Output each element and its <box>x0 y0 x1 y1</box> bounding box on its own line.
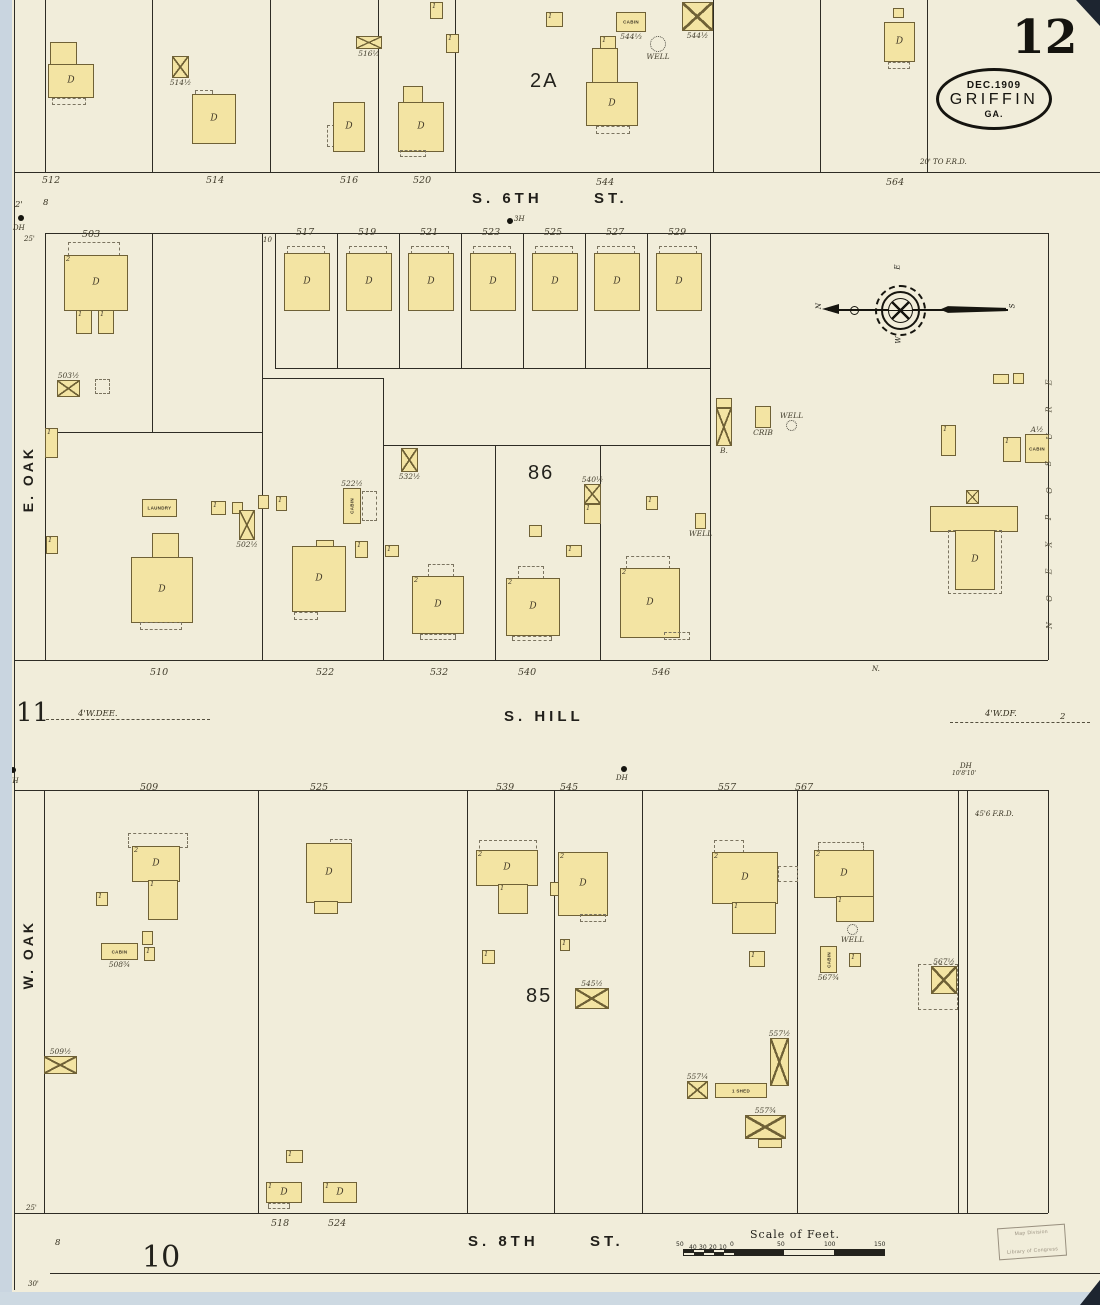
building <box>592 48 618 84</box>
building: D <box>192 94 236 144</box>
scale-title: Scale of Feet. <box>750 1228 840 1241</box>
compass-south-label: S <box>1008 304 1016 309</box>
building-storeys: 1 <box>47 428 51 436</box>
street-name: S. 6TH <box>472 190 543 207</box>
building-label: D <box>503 863 510 873</box>
porch-outline <box>778 866 798 882</box>
building-storeys: 1 <box>484 950 488 958</box>
lot-line <box>152 233 153 432</box>
building-storeys: 1 <box>213 501 217 509</box>
address-label: 512 <box>42 175 60 186</box>
building: 1 <box>849 953 861 967</box>
building-label: D <box>336 1187 343 1197</box>
building: D <box>470 253 516 311</box>
address-label: 564 <box>886 177 904 188</box>
outbuilding-x: 567½ <box>931 966 957 994</box>
scale-segment <box>684 1250 694 1253</box>
address-label: 503 <box>82 229 100 240</box>
building-label: D <box>551 277 558 287</box>
scale-segment <box>694 1252 704 1255</box>
building-storeys: 1 <box>48 536 52 544</box>
building: 1 <box>355 541 368 558</box>
building: D <box>884 22 915 62</box>
building-storeys: 2 <box>816 850 820 858</box>
address-label: 527 <box>606 227 624 238</box>
building: 1 <box>646 496 658 510</box>
stamp-line1: Map Division <box>1000 1228 1062 1238</box>
scale-bar <box>683 1249 885 1256</box>
building-label: D <box>158 585 165 595</box>
building: 1 <box>584 504 601 524</box>
building: D <box>408 253 454 311</box>
building-label: CABIN <box>350 498 355 514</box>
lot-line <box>337 233 338 368</box>
building-label: D <box>345 122 352 132</box>
building-label: D <box>67 76 74 86</box>
building-label: D <box>210 114 217 124</box>
address-label: 518 <box>271 1218 289 1229</box>
lot-line <box>383 445 710 446</box>
address-label: 520 <box>413 175 431 186</box>
lot-line <box>461 233 462 368</box>
building-label: D <box>365 277 372 287</box>
building: D2 <box>412 576 464 634</box>
building: D1 <box>266 1182 302 1203</box>
address-label: 525 <box>310 782 328 793</box>
sheet-number: 12 <box>1012 10 1077 65</box>
building-number: 567½ <box>933 957 955 966</box>
street-name: ST. <box>590 1233 624 1250</box>
building-number: 508¾ <box>109 960 131 969</box>
building-storeys: 2 <box>66 255 70 263</box>
exposure-edge-letter: P <box>1044 515 1053 520</box>
building <box>258 495 269 509</box>
building <box>930 506 1018 532</box>
address-label: 532 <box>430 667 448 678</box>
map-note: 10'8'10' <box>952 770 976 777</box>
lot-line <box>642 790 643 1213</box>
map-note: 20' TO F.R.D. <box>920 158 967 166</box>
address-label: 529 <box>668 227 686 238</box>
porch-outline <box>664 632 690 640</box>
exposure-edge-letter: R <box>1045 406 1054 412</box>
cabin-building: CABIN508¾ <box>101 943 138 960</box>
address-label: 509 <box>140 782 158 793</box>
building-number: B. <box>720 446 728 455</box>
lot-line <box>797 790 798 1213</box>
building-number: 502½ <box>236 540 258 549</box>
building <box>152 533 179 559</box>
map-note: 4'W.DF. <box>985 709 1017 719</box>
porch-outline <box>596 126 630 134</box>
lot-line <box>399 233 400 368</box>
building-number: 509½ <box>50 1047 72 1056</box>
title-badge: DEC.1909 GRIFFIN GA. <box>936 68 1052 130</box>
lot-line <box>820 0 821 172</box>
lot-line <box>275 233 276 368</box>
porch-outline <box>512 636 552 641</box>
map-note: 25' <box>26 1204 37 1212</box>
building: WELL <box>695 513 706 529</box>
badge-state: GA. <box>984 109 1003 119</box>
lot-line <box>14 790 1048 791</box>
building: 1 <box>749 951 765 967</box>
building-storeys: 1 <box>150 880 154 888</box>
lot-line <box>50 1273 1100 1274</box>
building <box>142 931 153 945</box>
address-label: 523 <box>482 227 500 238</box>
lot-line <box>927 0 928 172</box>
building-number: WELL <box>646 52 669 61</box>
building: 1 <box>98 310 114 334</box>
building-label: D <box>971 555 978 565</box>
building-storeys: 1 <box>448 34 452 42</box>
address-label: 514 <box>206 175 224 186</box>
building-number: 516½ <box>358 49 380 58</box>
building-label: D <box>152 859 159 869</box>
lot-line <box>262 233 263 660</box>
building-storeys: 1 <box>100 310 104 318</box>
map-note: 2' <box>15 200 23 210</box>
building-label: D <box>92 278 99 288</box>
building <box>893 8 904 18</box>
building: 1 <box>560 939 570 951</box>
map-note: 8 <box>43 198 48 208</box>
building-storeys: 1 <box>548 12 552 20</box>
block-number: 2A <box>530 70 558 93</box>
compass-west-label: W <box>895 336 903 343</box>
porch-outline <box>68 242 120 256</box>
building-storeys: 2 <box>560 852 564 860</box>
exposure-edge-letter: O <box>1045 487 1054 494</box>
building-number: WELL <box>689 529 712 538</box>
scale-segment <box>834 1250 884 1255</box>
building: 1 <box>1003 437 1021 462</box>
cabin-building: LAUNDRY <box>142 499 177 517</box>
porch-outline <box>52 98 86 105</box>
building-storeys: 1 <box>98 892 102 900</box>
building-label: D <box>315 574 322 584</box>
building: D <box>292 546 346 612</box>
outbuilding-x: 503½ <box>57 380 80 397</box>
map-layer: D514½D516½DD111CABIN544⅓WELL544½1DDDDDDD… <box>0 0 1100 1305</box>
building: D <box>346 253 392 311</box>
building: 1 <box>836 896 874 922</box>
building-number: 514½ <box>170 78 192 87</box>
exposure-edge-letter: O <box>1045 595 1054 602</box>
street-name: S. 8TH <box>468 1233 539 1250</box>
building: 1 <box>732 902 776 934</box>
lot-line <box>378 0 379 172</box>
building: D <box>398 102 444 152</box>
address-label: 517 <box>296 227 314 238</box>
building-storeys: 1 <box>838 896 842 904</box>
building: D2 <box>558 852 608 916</box>
map-note: 25' <box>24 235 35 243</box>
lot-line <box>258 790 259 1213</box>
scale-tick-label: 100 <box>824 1241 835 1248</box>
exposure-edge-letter: N <box>1045 622 1054 629</box>
porch-outline <box>140 622 182 630</box>
building: 1 <box>144 947 155 961</box>
address-label: 524 <box>328 1218 346 1229</box>
building-storeys: 1 <box>734 902 738 910</box>
lot-line <box>455 0 456 172</box>
address-label: 521 <box>420 227 438 238</box>
building-label: D <box>579 879 586 889</box>
lot-line <box>152 0 153 172</box>
building-number: A½ <box>1031 425 1044 434</box>
building-number: 544½ <box>687 31 709 40</box>
lot-line <box>14 172 1100 173</box>
porch-outline <box>420 634 456 640</box>
building: 1 <box>430 2 443 19</box>
map-note: N. <box>872 665 880 673</box>
building <box>314 901 338 914</box>
compass-ornament <box>850 306 859 315</box>
building: 1 <box>46 536 58 554</box>
building-storeys: 1 <box>357 541 361 549</box>
building: D <box>594 253 640 311</box>
building-label: D <box>489 277 496 287</box>
building-storeys: 1 <box>648 496 652 504</box>
building: 1 <box>385 545 399 557</box>
lot-line <box>967 790 968 1213</box>
building <box>50 42 77 65</box>
outbuilding-x: 544½ <box>682 2 713 31</box>
building-label: D <box>417 122 424 132</box>
building-number: WELL <box>780 411 803 420</box>
building: D2 <box>506 578 560 636</box>
building: 1 <box>498 884 528 914</box>
map-sheet: D514½D516½DD111CABIN544⅓WELL544½1DDDDDDD… <box>0 0 1100 1305</box>
building-label: D <box>646 598 653 608</box>
hydrant-dot <box>18 215 24 221</box>
map-note: 45'6 F.R.D. <box>975 810 1014 818</box>
compass-north-label: N <box>815 303 823 309</box>
lot-line <box>713 0 714 172</box>
scale-segment <box>704 1250 714 1253</box>
street-name: ST. <box>594 190 628 207</box>
porch-outline <box>268 1203 290 1209</box>
building: D2 <box>64 255 128 311</box>
building: D2 <box>476 850 538 886</box>
address-label: 519 <box>358 227 376 238</box>
exposure-edge-letter: U <box>1045 433 1054 440</box>
lot-line <box>275 368 710 369</box>
lot-line <box>262 378 383 379</box>
building-label: D <box>529 602 536 612</box>
building-number: 545½ <box>581 979 603 988</box>
building-label: LAUNDRY <box>148 505 172 510</box>
scale-tick-label: 50 <box>777 1241 785 1248</box>
address-label: 557 <box>718 782 736 793</box>
lot-line <box>14 660 1048 661</box>
lot-line <box>270 0 271 172</box>
address-label: 544 <box>596 177 614 188</box>
building-label: 1 SHED <box>732 1088 750 1093</box>
building-number: CRIB <box>753 428 773 437</box>
building-storeys: 1 <box>1005 437 1009 445</box>
exposure-edge-letter: E <box>1044 380 1053 386</box>
building-number: 557½ <box>769 1029 791 1038</box>
address-label: 540 <box>518 667 536 678</box>
porch-outline <box>362 491 377 521</box>
lot-line <box>45 432 262 433</box>
building-storeys: 1 <box>387 545 391 553</box>
well-marker: WELL <box>786 420 797 431</box>
building-storeys: 1 <box>568 545 572 553</box>
outbuilding-x: 514½ <box>172 56 189 78</box>
well-marker: WELL <box>650 36 666 52</box>
outbuilding-x: 509½ <box>44 1056 77 1074</box>
building: D <box>306 843 352 903</box>
building: D <box>131 557 193 623</box>
badge-date: DEC.1909 <box>967 80 1021 91</box>
exposure-edge-letter: E <box>1044 569 1053 575</box>
building: 1 <box>546 12 563 27</box>
lot-line <box>554 790 555 1213</box>
building: D <box>284 253 330 311</box>
building-number: 544⅓ <box>620 32 642 41</box>
building-storeys: 1 <box>432 2 436 10</box>
building-number: WELL <box>841 935 864 944</box>
street-name: W. OAK <box>20 920 36 989</box>
building: 1 <box>286 1150 303 1163</box>
address-label: 539 <box>496 782 514 793</box>
cabin-building: CABIN567¾ <box>820 946 837 973</box>
building: CRIB <box>755 406 771 428</box>
building-label: D <box>613 277 620 287</box>
compass-east-label: E <box>894 264 902 269</box>
lot-line <box>45 0 46 172</box>
outbuilding-x: 532½ <box>401 448 418 472</box>
compass-inner-star <box>888 298 913 323</box>
exposure-edge-letter: X <box>1044 542 1053 548</box>
building: D2 <box>712 852 778 904</box>
building-number: 557¼ <box>687 1072 709 1081</box>
cabin-building: CABIN544⅓ <box>616 12 646 32</box>
porch-outline <box>95 379 110 394</box>
stamp-line2: Library of Congress <box>1001 1246 1063 1256</box>
annotation-dash-line <box>46 719 210 720</box>
hydrant-dot <box>507 218 513 224</box>
map-note: DH <box>960 762 972 770</box>
lot-line <box>383 378 384 660</box>
building-storeys: 1 <box>268 1182 272 1190</box>
cabin-building: CABIN522½ <box>343 488 361 524</box>
building-label: CABIN <box>1029 446 1045 451</box>
building <box>1013 373 1024 384</box>
address-label: 525 <box>544 227 562 238</box>
building-number: 557¾ <box>755 1106 777 1115</box>
map-note: 2 <box>1060 712 1065 722</box>
loc-stamp: Map Division Library of Congress <box>997 1224 1067 1261</box>
cabin-building: 1 SHED <box>715 1083 767 1098</box>
building-label: D <box>840 869 847 879</box>
building <box>716 398 732 408</box>
building: D2 <box>132 846 180 882</box>
building-storeys: 1 <box>78 310 82 318</box>
building: 1 <box>446 34 459 53</box>
scale-tick-label: 150 <box>874 1241 885 1248</box>
building: D2 <box>814 850 874 898</box>
building: 1 <box>566 545 582 557</box>
street-name: S. HILL <box>504 708 584 725</box>
building-storeys: 1 <box>562 939 566 947</box>
lot-line <box>585 233 586 368</box>
building-storeys: 2 <box>478 850 482 858</box>
building-number: 532½ <box>399 472 421 481</box>
building-storeys: 1 <box>751 951 755 959</box>
building-storeys: 1 <box>278 496 282 504</box>
building-number: 503½ <box>58 371 80 380</box>
building-storeys: 2 <box>714 852 718 860</box>
building-storeys: 1 <box>851 953 855 961</box>
scale-segment <box>734 1250 784 1255</box>
address-label: 522 <box>316 667 334 678</box>
building-storeys: 1 <box>500 884 504 892</box>
compass-tail-feather <box>940 305 1006 314</box>
scale-segment <box>724 1250 734 1253</box>
compass-rose: N S E W <box>818 270 1018 350</box>
building: 1 <box>482 950 495 964</box>
outbuilding-x: 557¼ <box>687 1081 708 1099</box>
address-label: 567 <box>795 782 813 793</box>
building: D2 <box>620 568 680 638</box>
lot-line <box>495 445 496 660</box>
building-storeys: 2 <box>134 846 138 854</box>
adjacent-sheet-number: 11 <box>16 698 49 728</box>
building <box>403 86 423 103</box>
porch-outline <box>294 612 318 620</box>
building-number: 567¾ <box>818 973 840 982</box>
building: D <box>955 530 995 590</box>
lot-line <box>14 1213 1048 1214</box>
building-number: 540½ <box>582 475 604 484</box>
building-label: D <box>675 277 682 287</box>
map-note: 8 <box>55 1238 60 1248</box>
map-note: DH <box>616 774 628 782</box>
porch-outline <box>580 914 606 922</box>
building: D <box>586 82 638 126</box>
outbuilding-x: 502½ <box>239 510 255 540</box>
building: 1 <box>211 501 226 515</box>
building-label: CABIN <box>112 949 128 954</box>
building-label: D <box>434 600 441 610</box>
building-storeys: 1 <box>943 425 947 433</box>
address-label: 546 <box>652 667 670 678</box>
building <box>758 1139 782 1148</box>
building-label: D <box>896 37 903 47</box>
map-note: 4'W.DEE. <box>78 709 118 719</box>
building <box>529 525 542 537</box>
outbuilding-x: 557½ <box>770 1038 789 1086</box>
exposure-edge-letter: S <box>1044 461 1053 466</box>
well-marker: WELL <box>847 924 858 935</box>
building-label: D <box>427 277 434 287</box>
building-storeys: 1 <box>288 1150 292 1158</box>
block-number: 86 <box>528 462 554 485</box>
porch-outline <box>400 150 426 157</box>
address-label: 545 <box>560 782 578 793</box>
building: 1 <box>276 496 287 511</box>
outbuilding-x: 557¾ <box>745 1115 786 1139</box>
building: 1 <box>148 880 178 920</box>
building-number: 522½ <box>341 479 363 488</box>
badge-city: GRIFFIN <box>950 91 1039 109</box>
building-label: D <box>303 277 310 287</box>
